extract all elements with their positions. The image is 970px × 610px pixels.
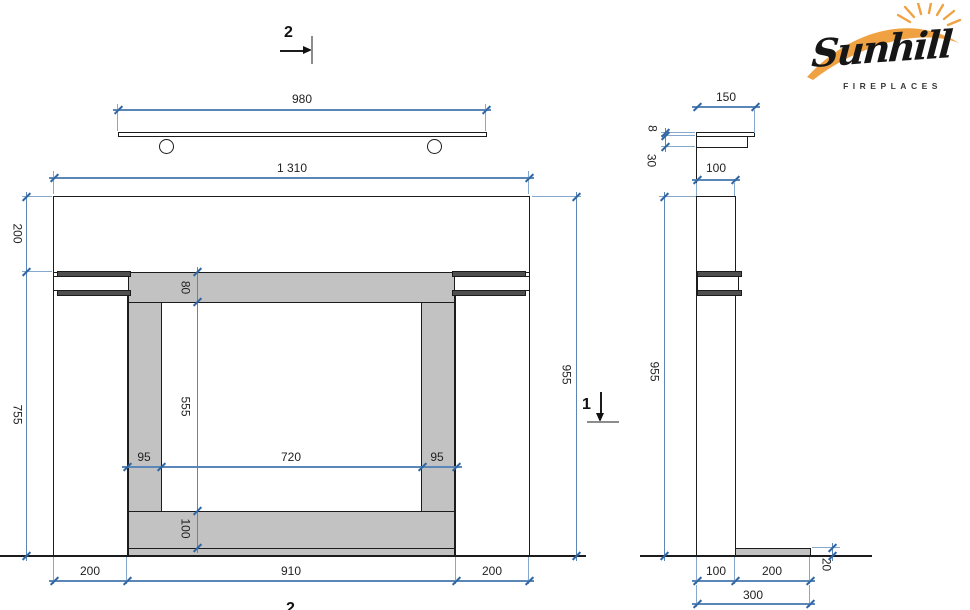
left-pillar (53, 272, 128, 556)
left-capital-band (53, 276, 129, 291)
dim-label-hearth-depth: 200 (742, 564, 802, 579)
section-cut-line-side (587, 421, 619, 423)
dim-label-base-left: 200 (60, 564, 120, 579)
dim-line-side-total-height (664, 192, 665, 561)
shelf-plate (118, 132, 487, 137)
dim-line-total-depth (692, 603, 815, 605)
dim-label-opening-width: 720 (261, 450, 321, 465)
ground-line-side (640, 555, 872, 557)
section-marker-top-label: 2 (284, 24, 293, 42)
extension-line (528, 171, 529, 194)
firebox-jamb-right (421, 302, 455, 512)
dim-line-shelf-width (113, 109, 491, 111)
dim-label-top-band: 200 (10, 214, 25, 254)
side-capital-band (697, 276, 739, 291)
dim-line-front-total-height (576, 192, 577, 561)
dim-label-opening-height: 555 (178, 387, 193, 427)
dim-label-base-right: 200 (462, 564, 522, 579)
right-pillar (455, 272, 530, 556)
dim-label-base-center: 910 (261, 564, 321, 579)
extension-line (696, 183, 697, 196)
firebox-opening (161, 302, 422, 512)
dim-label-hearth-band: 100 (178, 509, 193, 549)
side-column (696, 196, 736, 556)
dim-label-lintel: 80 (178, 268, 193, 308)
shelf-dowel-right (427, 139, 442, 154)
dim-label-shelf-width: 980 (262, 92, 342, 107)
dim-label-shelf-depth: 150 (696, 90, 756, 105)
brand-tagline: FIREPLACES (830, 81, 955, 91)
dim-line-opening-widths (122, 466, 462, 468)
dim-label-column-depth: 100 (686, 161, 746, 176)
dim-label-apron: 30 (644, 141, 659, 181)
extension-line (734, 183, 735, 196)
section-cut-line-top (311, 36, 313, 64)
section-marker-top-line (280, 50, 305, 52)
left-capital-strip-bottom (57, 290, 131, 296)
dim-line-shelf-depth (692, 106, 760, 108)
dim-line-left-heights (26, 192, 27, 561)
dim-line-front-base (49, 580, 534, 582)
section-marker-side-line (600, 392, 602, 414)
firebox-jamb-left (128, 302, 162, 512)
extension-line (754, 110, 755, 133)
extension-line (53, 171, 54, 194)
dim-label-pillar-height: 755 (10, 395, 25, 435)
dim-label-jamb-right: 95 (417, 450, 457, 465)
dim-label-front-total-height: 955 (559, 355, 574, 395)
side-shelf-apron (696, 136, 748, 148)
side-capital-strip-bottom (697, 290, 742, 296)
right-capital-band (454, 276, 530, 291)
shelf-dowel-left (159, 139, 174, 154)
dim-line-overall-width (49, 177, 534, 179)
dim-label-overall-width: 1 310 (252, 161, 332, 176)
dim-label-total-depth: 300 (723, 588, 783, 603)
section-marker-side-label: 1 (582, 396, 591, 414)
section-marker-bottom-label: 2 (286, 600, 295, 610)
dim-line-side-base (692, 580, 815, 582)
technical-drawing-canvas: Sunhill FIREPLACES 2 1 2 (0, 0, 970, 610)
right-capital-strip-bottom (452, 290, 526, 296)
ground-line-front (0, 555, 586, 557)
dim-label-side-total-height: 955 (647, 352, 662, 392)
mantel-top-band (53, 196, 530, 273)
